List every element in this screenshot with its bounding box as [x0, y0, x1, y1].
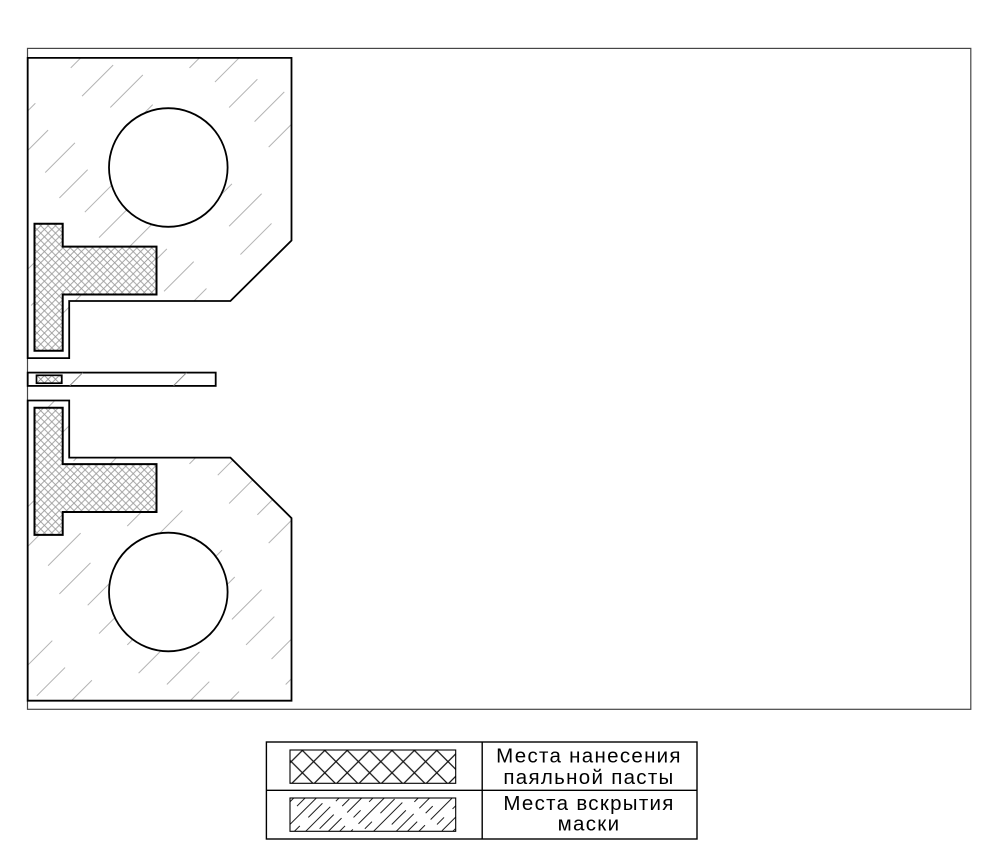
- svg-text:Места вскрытия: Места вскрытия: [503, 792, 674, 815]
- svg-text:маски: маски: [558, 813, 621, 836]
- svg-text:паяльной пасты: паяльной пасты: [503, 766, 674, 789]
- svg-text:Места нанесения: Места нанесения: [496, 745, 682, 768]
